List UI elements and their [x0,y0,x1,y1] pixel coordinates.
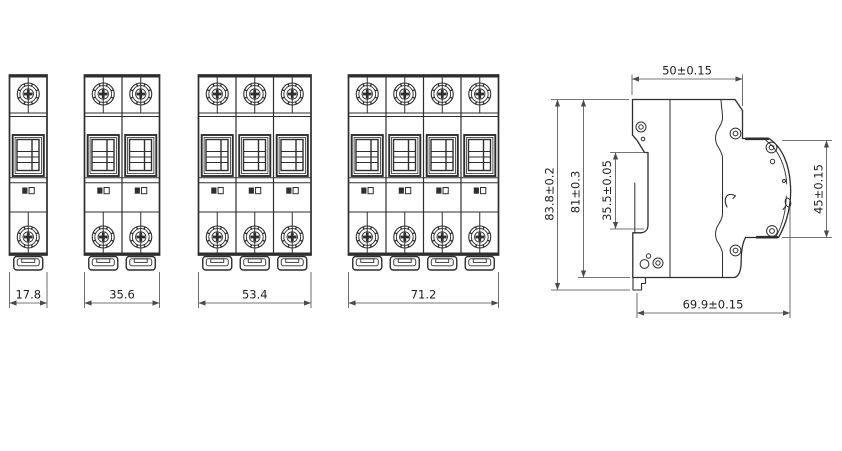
breaker-front-view-2p: 35.6 [84,75,160,309]
toggle-recess [13,135,44,176]
side-view [633,100,792,291]
dimension-label-din-recess: 35.5±0.05 [600,160,614,221]
pole-cell [277,77,308,270]
pole-cell [125,77,156,270]
din-clip [278,257,307,271]
din-clip [14,257,43,271]
din-clip [126,257,155,271]
dimension-label-front-height: 45±0.15 [812,164,826,214]
pole-cell [239,77,270,270]
din-clip [353,257,382,271]
dimension-label-depth: 69.9±0.15 [683,298,744,312]
rating-window [399,188,411,194]
width-dimension: 17.8 [10,272,48,308]
toggle-recess [389,135,420,176]
technical-drawing-svg: 50±0.15 83.8±0.2 81±0.3 35.5±0.05 [0,0,842,451]
rating-window [286,188,298,194]
rating-window [474,188,486,194]
rating-window [135,188,147,194]
breaker-front-view-1p: 17.8 [9,75,48,309]
dimension-overall-height: 83.8±0.2 [543,100,631,291]
dimension-label-top-width: 50±0.15 [662,64,712,78]
din-clip [428,257,457,271]
rating-window [97,188,109,194]
side-din-clip-tab [633,278,646,291]
side-rivets [636,122,786,268]
side-outline-front-cover [743,139,791,238]
breaker-front-view-3p: 53.4 [198,75,312,309]
dimension-din-recess: 35.5±0.05 [600,153,646,230]
pole-cell [202,77,233,270]
rating-window [249,188,261,194]
width-dimension-label: 71.2 [411,288,437,302]
width-dimension: 71.2 [349,272,499,308]
pole-cell [427,77,458,270]
width-dimension-label: 35.6 [109,288,135,302]
dimension-label-body-height: 81±0.3 [569,171,583,214]
breaker-front-view-4p: 71.2 [348,75,499,309]
pole-cell [464,77,495,270]
pole-cell [352,77,383,270]
rating-window [361,188,373,194]
toggle-recess [464,135,495,176]
width-dimension: 53.4 [199,272,312,308]
mcb-dimension-drawing: 50±0.15 83.8±0.2 81±0.3 35.5±0.05 [0,0,842,451]
width-dimension-label: 53.4 [242,288,268,302]
dimension-label-overall-height: 83.8±0.2 [543,167,557,221]
din-clip [203,257,232,271]
pole-cell [389,77,420,270]
width-dimension-label: 17.8 [15,288,41,302]
side-housing-seam-contour [716,100,723,278]
side-view-dimensions: 50±0.15 83.8±0.2 81±0.3 35.5±0.05 [543,64,833,319]
toggle-recess [352,135,383,176]
rating-window [22,188,34,194]
width-dimension: 35.6 [85,272,160,308]
rating-window [436,188,448,194]
din-clip [390,257,419,271]
toggle-recess [125,135,156,176]
toggle-recess [239,135,270,176]
toggle-recess [202,135,233,176]
toggle-recess [277,135,308,176]
dimension-front-height: 45±0.15 [782,141,832,238]
pole-cell [88,77,119,270]
side-handle-slot [725,194,735,207]
side-outline-top [633,100,743,139]
toggle-recess [427,135,458,176]
rating-window [211,188,223,194]
din-clip [89,257,118,271]
front-views-group: 17.835.653.471.2 [9,75,499,309]
din-clip [240,257,269,271]
toggle-recess [88,135,119,176]
din-clip [465,257,494,271]
pole-cell [13,77,44,270]
